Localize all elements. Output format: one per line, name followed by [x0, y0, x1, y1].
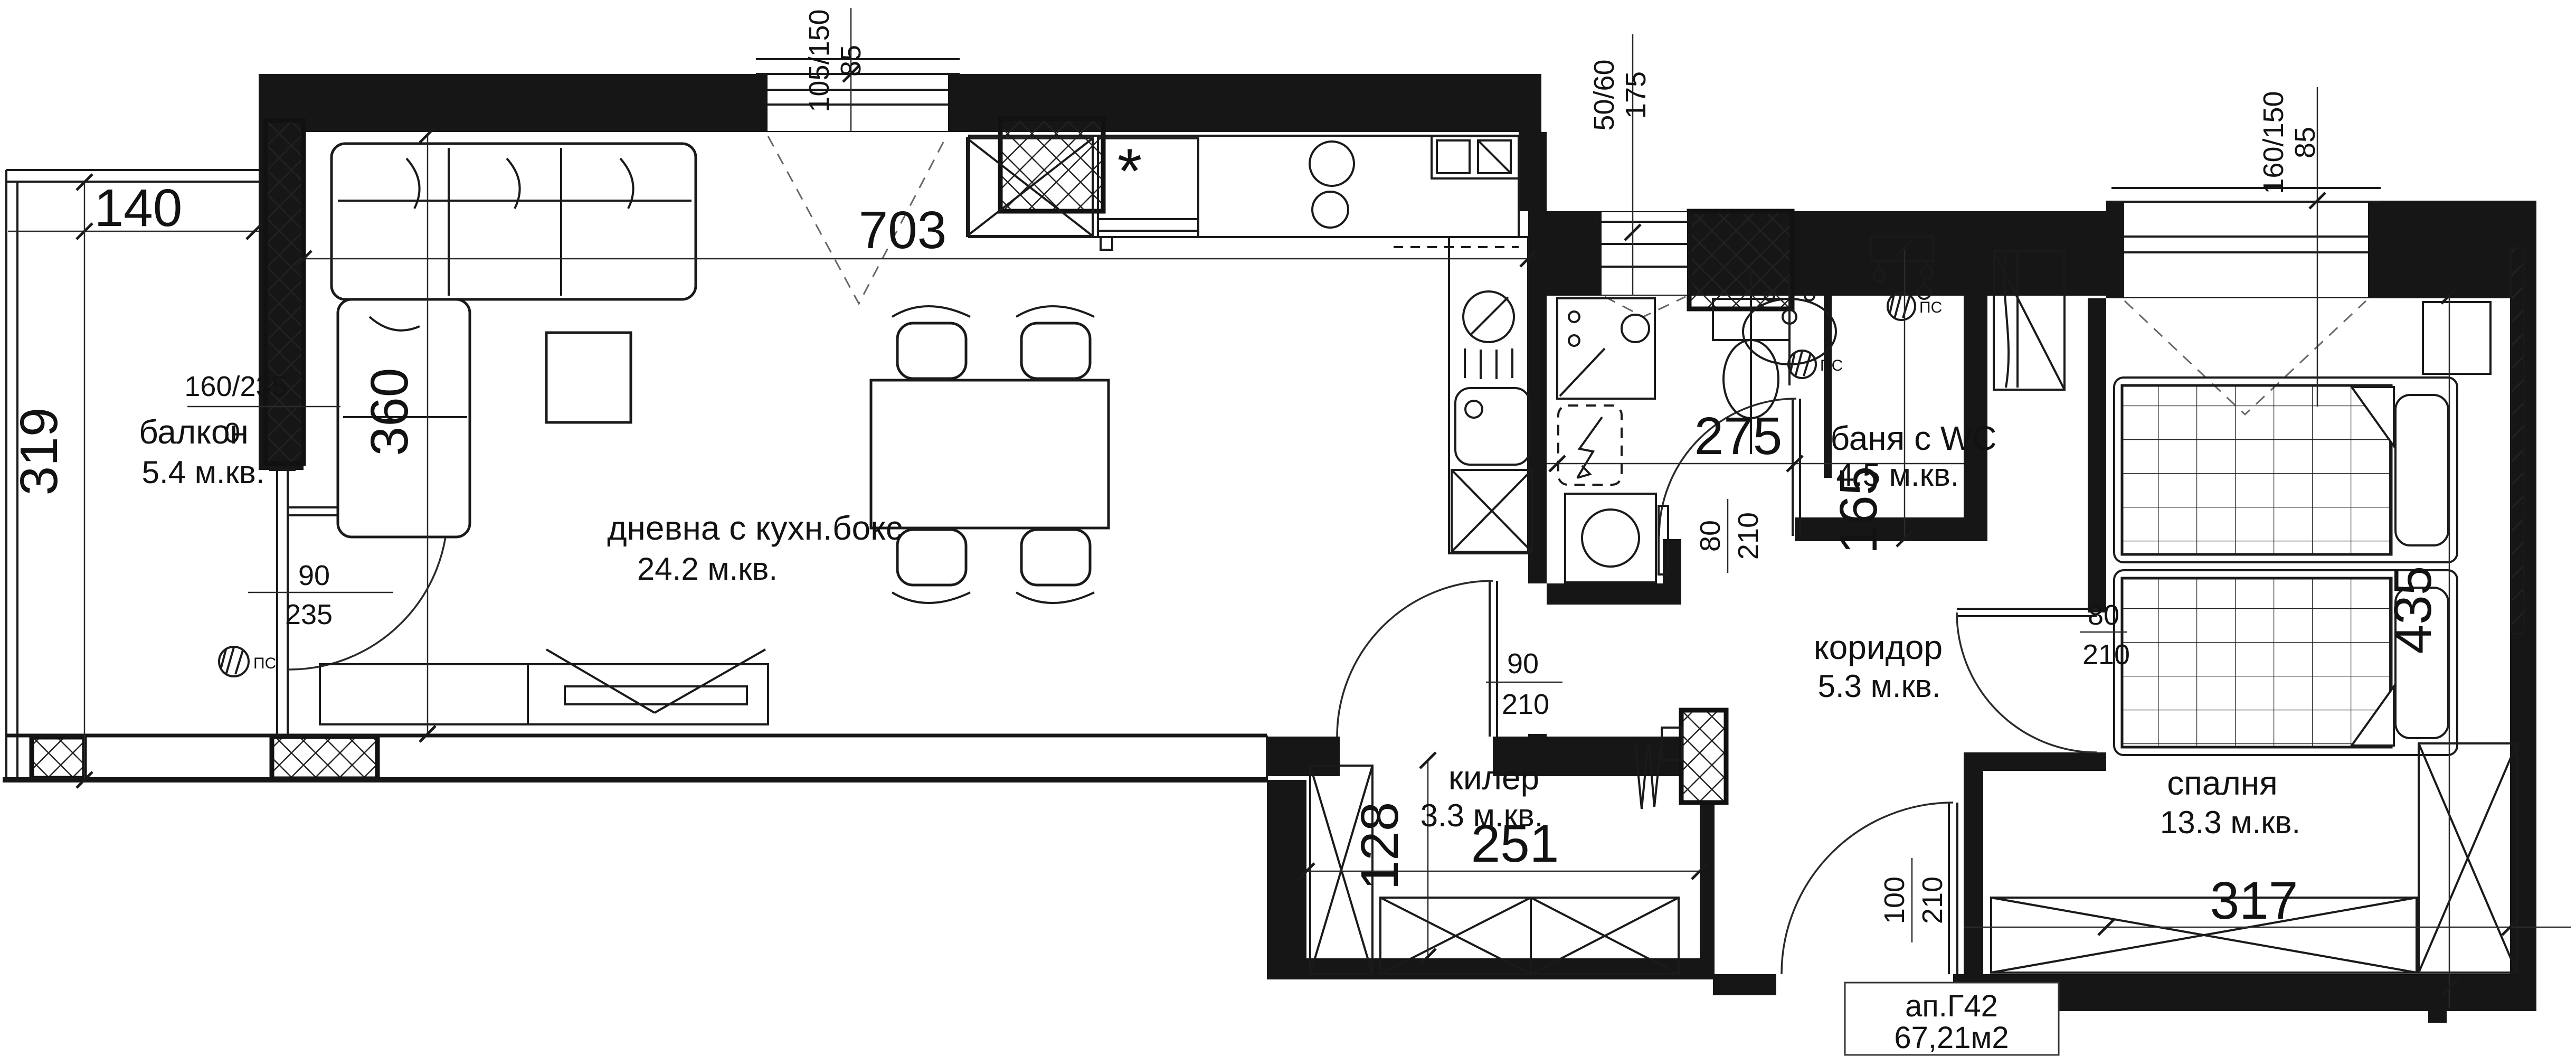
- room-label-bedroom: спалня: [2167, 764, 2278, 802]
- dim-435: 435: [2383, 566, 2442, 654]
- wardrobe-icon: [2419, 743, 2517, 973]
- room-label-corridor: коридор: [1814, 628, 1943, 666]
- dim-entrance-door: 100 210: [1879, 858, 1948, 942]
- svg-text:210: 210: [1732, 512, 1764, 560]
- chair-icon: [892, 306, 970, 379]
- room-label-bath: баня с WC: [1831, 419, 1997, 457]
- dim-balcony-door-sill: 0: [224, 417, 240, 449]
- column-icon: [32, 737, 84, 778]
- dim-bath-door: 80 210: [1694, 499, 1764, 573]
- floor-plan: *: [0, 0, 2576, 1056]
- room-area-balcony: 5.4 м.кв.: [142, 455, 265, 490]
- small-appliances-icon: [1432, 136, 1519, 178]
- dim-165: 165: [1829, 466, 1888, 554]
- svg-text:160/150: 160/150: [2258, 91, 2289, 194]
- column-icon: [272, 737, 377, 779]
- dim-251: 251: [1471, 814, 1559, 873]
- dim-703: 703: [859, 201, 947, 260]
- svg-text:85: 85: [2289, 127, 2321, 158]
- room-area-bedroom: 13.3 м.кв.: [2160, 805, 2300, 840]
- dining-set: [871, 306, 1109, 603]
- apartment-label-box: ап.Г42 67,21м2: [1845, 983, 2059, 1055]
- dim-360: 360: [360, 368, 419, 456]
- bed-icon: [2114, 378, 2457, 562]
- storage-door: [1337, 581, 1497, 737]
- dim-balcony-exit-w: 90: [298, 560, 330, 591]
- svg-text:210: 210: [1917, 876, 1948, 924]
- kitchen-counter-icon: [1449, 237, 1528, 553]
- room-label-storage: килер: [1448, 759, 1539, 797]
- column-icon: [1689, 211, 1792, 309]
- bath-window: [1594, 212, 1694, 317]
- room-label-living: дневна с кухн.бокс: [607, 509, 903, 547]
- vent-label: ПС: [1820, 357, 1843, 374]
- column-icon: [1681, 710, 1726, 803]
- party-wall-hatch: [2511, 248, 2524, 634]
- dim-storage-door-w: 90: [1507, 648, 1539, 680]
- dim-317: 317: [2210, 871, 2298, 930]
- bedroom-window: [2111, 188, 2381, 414]
- column-icon: [266, 120, 304, 464]
- wardrobe-icon: [1991, 898, 2417, 973]
- chair-icon: [892, 530, 970, 603]
- washing-machine-icon: [1565, 494, 1668, 582]
- coffee-table-icon: [546, 333, 631, 422]
- svg-text:105/150: 105/150: [803, 9, 835, 112]
- chair-icon: [1016, 530, 1094, 603]
- shower-icon: [1557, 298, 1655, 399]
- apartment-id: ап.Г42: [1905, 989, 1998, 1023]
- dim-bedroom-door-h: 210: [2082, 639, 2130, 671]
- vent-label: ПС: [1919, 299, 1942, 316]
- vent-icon: ПС: [219, 647, 276, 676]
- svg-text:50/60: 50/60: [1588, 59, 1620, 130]
- dim-bedroom-window: 160/150 85: [2258, 91, 2321, 194]
- dim-balcony-door-size: 160/235: [184, 371, 287, 402]
- svg-text:85: 85: [835, 45, 867, 77]
- kitchen-sink-unit-icon: *: [1098, 136, 1198, 250]
- room-area-living: 24.2 м.кв.: [637, 551, 778, 587]
- basin-icon: [1455, 388, 1530, 465]
- dim-140: 140: [94, 178, 183, 238]
- vent-icon: ПС: [1888, 293, 1942, 320]
- tv-stand-icon: [320, 649, 768, 724]
- svg-text:100: 100: [1879, 876, 1910, 924]
- hob-icon: [1310, 142, 1354, 228]
- svg-text:80: 80: [1694, 520, 1726, 552]
- dim-bedroom-door-w: 80: [2088, 599, 2119, 631]
- nightstand-icon: [2423, 302, 2490, 374]
- dim-128: 128: [1350, 802, 1409, 890]
- living-window: [756, 59, 960, 304]
- apartment-total-area: 67,21м2: [1894, 1021, 2009, 1055]
- sofa-icon: [332, 144, 696, 537]
- dining-table-icon: [871, 380, 1109, 528]
- dim-storage-door-h: 210: [1502, 689, 1549, 720]
- vent-label: ПС: [253, 655, 276, 672]
- room-area-corridor: 5.3 м.кв.: [1818, 668, 1941, 704]
- dim-balcony-exit-h: 235: [285, 599, 333, 630]
- svg-text:*: *: [1117, 136, 1142, 206]
- tv-icon: [565, 686, 747, 704]
- dim-319: 319: [10, 408, 69, 496]
- dim-bath-window: 50/60 175: [1588, 59, 1652, 130]
- svg-text:175: 175: [1620, 71, 1652, 119]
- dishwasher-icon: [1452, 470, 1532, 552]
- round-sink-icon: [1463, 291, 1514, 379]
- bedroom-door: [1957, 609, 2097, 752]
- boiler-icon: [1558, 406, 1622, 485]
- dim-275: 275: [1694, 407, 1783, 466]
- chair-icon: [1016, 306, 1094, 379]
